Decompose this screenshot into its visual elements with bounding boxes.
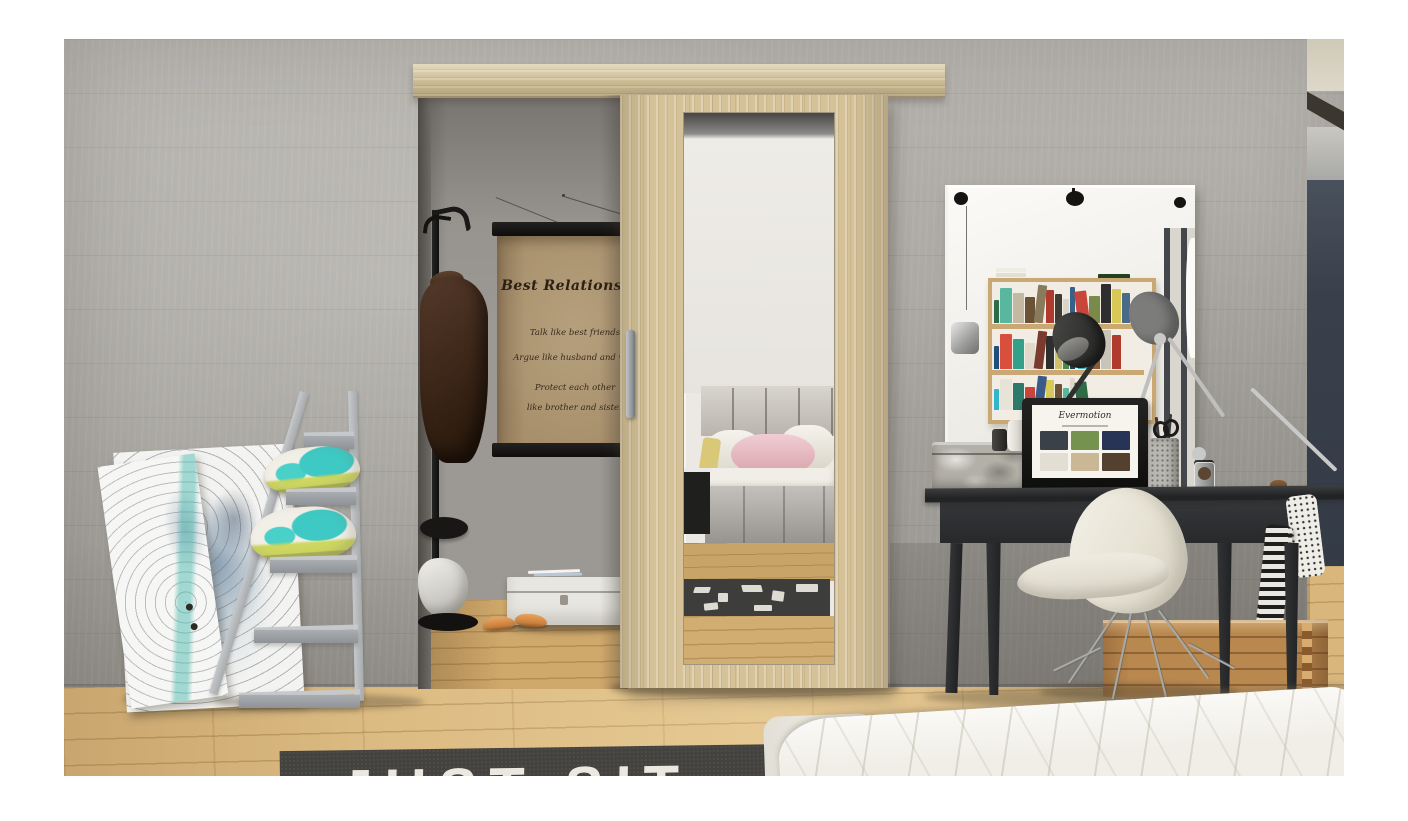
ladder-shelf-lip xyxy=(270,560,357,573)
coat-stand-base xyxy=(418,613,478,631)
ladder-shelf-lip xyxy=(286,492,356,505)
chest-latch xyxy=(560,595,568,605)
lamp-joint xyxy=(1154,333,1166,345)
reflected-floor xyxy=(684,543,834,581)
laptop-site-logo: Evermotion xyxy=(1032,411,1138,421)
room-photo: Best Relationship Talk like best friends… xyxy=(64,39,1344,776)
reflected-bed-base xyxy=(705,486,834,548)
sliding-door-track xyxy=(413,64,945,98)
ladder-shelf-lip xyxy=(254,630,358,643)
coat-stand-ring xyxy=(420,517,468,539)
mirror-top-shadow xyxy=(684,113,834,139)
rug-text: JUST SIT xyxy=(340,752,692,776)
black-jar xyxy=(992,429,1007,451)
laptop-screen: Evermotion xyxy=(1032,405,1138,478)
reflected-curtain xyxy=(1186,238,1195,358)
trunk-lid-seam xyxy=(932,453,1028,455)
door-handle[interactable] xyxy=(626,330,635,418)
reflected-spotlight-icon xyxy=(954,192,968,205)
lamp-joint xyxy=(1192,447,1206,461)
pencil-cup xyxy=(1150,438,1179,492)
ladder-shelf-lip xyxy=(239,695,360,708)
reflected-rug xyxy=(684,579,830,619)
reflected-spotlight-icon xyxy=(1174,197,1186,208)
reflected-floor-near xyxy=(684,616,834,664)
reflected-lamp-wire xyxy=(966,206,967,310)
laptop-nav-bar xyxy=(1062,425,1108,427)
crate-dovetail-joint xyxy=(1302,623,1312,693)
reflected-spotlight-icon xyxy=(1066,191,1084,206)
laptop-thumbnails xyxy=(1040,431,1130,471)
reflected-nightstand xyxy=(684,472,710,534)
hanging-coat xyxy=(420,277,488,463)
towel xyxy=(418,558,468,616)
passage-ceiling xyxy=(1307,39,1344,91)
reflected-wall-lamp xyxy=(951,322,979,354)
mirror-reflected-wall xyxy=(684,133,834,393)
door-mirror xyxy=(683,112,835,665)
glass-cup-content xyxy=(1198,467,1211,480)
